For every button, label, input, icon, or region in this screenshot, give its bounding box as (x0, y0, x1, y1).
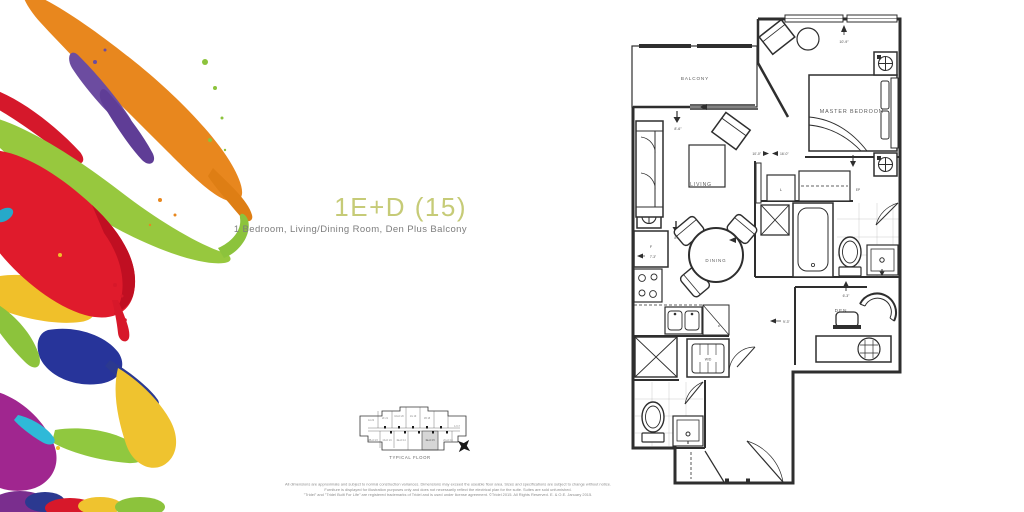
dimension-den-width: 6'-3" (843, 281, 851, 298)
title-block: 1E+D (15) 1 Bedroom, Living/Dining Room,… (167, 194, 467, 235)
page-subtitle: 1 Bedroom, Living/Dining Room, Den Plus … (167, 224, 467, 235)
toilet (839, 237, 861, 276)
dining-set (673, 213, 759, 298)
disclaimer: All dimensions are approximate and subje… (269, 482, 627, 498)
bathroom-door (876, 203, 898, 225)
key-plan-caption: TYPICAL FLOOR (389, 455, 431, 460)
dimension-fridge-wall: 7'-3" (650, 255, 656, 259)
svg-text:1F+D 24: 1F+D 24 (382, 439, 392, 442)
svg-text:2B+D 23: 2B+D 23 (368, 439, 378, 442)
svg-text:2C+D 16: 2C+D 16 (443, 439, 453, 442)
svg-text:1J 17: 1J 17 (454, 425, 461, 428)
den-chair (833, 312, 861, 329)
dimension-den-length: 9'-3" (770, 319, 791, 325)
dimension-living: 10'-0" 16'-0" (752, 151, 789, 156)
hall-closet: EP (799, 155, 860, 201)
svg-text:2F 21: 2F 21 (382, 417, 389, 420)
disclaimer-line-3: "Tridel" and "Tridel Built For Life" are… (269, 493, 627, 498)
bathroom-vanity (867, 245, 898, 276)
svg-text:10'-0": 10'-0" (752, 152, 761, 156)
fridge: F 7'-3" (634, 231, 668, 267)
key-plan-doors (384, 426, 448, 434)
bedroom-round-table (797, 28, 819, 50)
bathtub (793, 203, 833, 277)
svg-text:1B 18: 1B 18 (424, 417, 431, 420)
room-label-dining: DINING (705, 258, 726, 263)
svg-text:W/D: W/D (705, 358, 712, 362)
key-plan: 1A 22 2F 21 1D+D 20 1G 19 1B 18 1J 17 2B… (356, 402, 474, 462)
room-label-master-bedroom: MASTER BEDROOM (820, 109, 884, 115)
bedroom-chair (759, 20, 795, 55)
washer-dryer: W/D (687, 339, 729, 377)
svg-text:10'-9": 10'-9" (839, 40, 849, 44)
disclaimer-line-1: All dimensions are approximate and subje… (269, 482, 627, 487)
bath-closet (761, 205, 789, 235)
dimension-master-bedroom: 10'-9" (839, 25, 849, 44)
floor-plan: BALCONY (615, 5, 915, 485)
svg-text:1E+D 14: 1E+D 14 (396, 439, 406, 442)
bedroom-windows (785, 15, 897, 22)
room-label-balcony: BALCONY (681, 76, 709, 81)
svg-text:1A 22: 1A 22 (368, 419, 375, 422)
dining-table (689, 228, 743, 282)
den-basket (858, 338, 880, 360)
svg-text:6'-3": 6'-3" (843, 294, 851, 298)
svg-text:1D+D 20: 1D+D 20 (394, 415, 404, 418)
page-title: 1E+D (15) (167, 194, 467, 220)
living-chair (712, 112, 750, 149)
dimension-balcony: 8'-6" (674, 111, 683, 131)
key-plan-highlighted-unit-label: 1E+D 15 (425, 439, 435, 442)
linen-closet: L (756, 163, 795, 203)
entry-closet (635, 337, 677, 377)
powder-vanity (673, 416, 703, 446)
coffee-table (689, 145, 725, 187)
key-plan-unit-labels: 1A 22 2F 21 1D+D 20 1G 19 1B 18 1J 17 2B… (368, 415, 461, 442)
brochure-page: 1E+D (15) 1 Bedroom, Living/Dining Room,… (0, 0, 1024, 512)
paint-splash-image (0, 0, 260, 512)
den-armchair (860, 293, 896, 321)
sofa (636, 121, 663, 217)
svg-text:1G 19: 1G 19 (410, 415, 417, 418)
svg-text:9'-3": 9'-3" (783, 320, 791, 324)
powder-toilet (642, 402, 664, 442)
kitchen-sink (665, 307, 702, 334)
cooktop (634, 269, 662, 302)
svg-text:16'-0": 16'-0" (780, 152, 789, 156)
north-arrow-icon (453, 435, 474, 458)
room-label-living: LIVING (690, 182, 712, 188)
electrical-panel-label: EP (856, 188, 860, 192)
laundry-door (729, 347, 755, 373)
powder-door (685, 382, 703, 404)
dishwasher: D (703, 305, 729, 335)
svg-text:8'-6": 8'-6" (674, 127, 682, 131)
